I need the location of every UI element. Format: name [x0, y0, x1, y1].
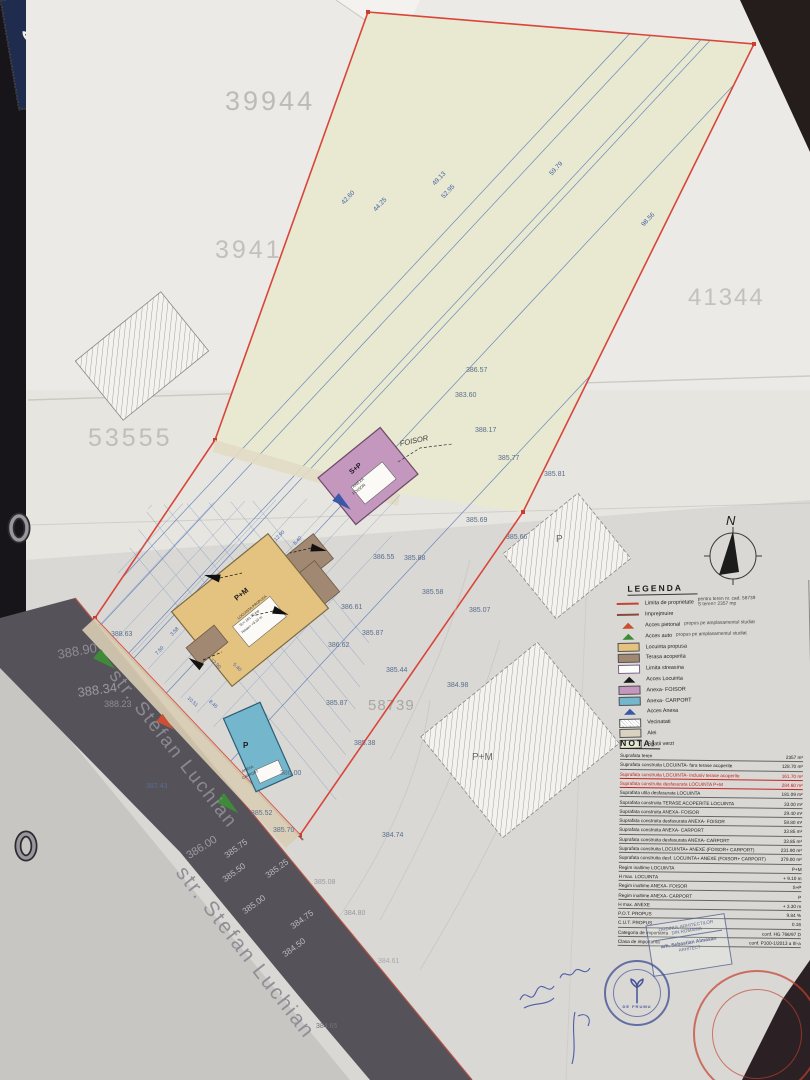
pedestrian-access-symbol	[616, 623, 640, 630]
svg-text:384.61: 384.61	[378, 958, 400, 965]
neighbor-label: P	[556, 534, 563, 545]
svg-text:385.81: 385.81	[544, 471, 566, 478]
parcel-id: 41344	[688, 284, 765, 311]
svg-text:386.00: 386.00	[280, 770, 302, 777]
svg-text:385.70: 385.70	[273, 827, 295, 834]
svg-text:386.62: 386.62	[328, 642, 350, 649]
neighbors-symbol	[618, 718, 642, 728]
svg-text:384.74: 384.74	[382, 832, 404, 839]
carport-symbol	[618, 697, 642, 707]
svg-text:388.63: 388.63	[111, 631, 133, 638]
fence-symbol	[616, 613, 640, 616]
north-label: N	[726, 513, 736, 528]
parcel-id: 39944	[225, 86, 315, 116]
svg-text:385.87: 385.87	[326, 700, 348, 707]
svg-text:386.61: 386.61	[341, 604, 363, 611]
svg-text:384.98: 384.98	[447, 682, 469, 689]
svg-text:386.57: 386.57	[466, 367, 488, 374]
svg-text:385.52: 385.52	[251, 810, 273, 817]
svg-text:385.08: 385.08	[314, 879, 336, 886]
parcel-id: 58739	[368, 697, 415, 714]
svg-text:385.44: 385.44	[386, 667, 408, 674]
auto-access-symbol	[616, 633, 640, 640]
svg-text:385.87: 385.87	[362, 630, 384, 637]
company-round-stamp: DE FRUMU	[604, 960, 670, 1026]
terrace-symbol	[617, 653, 641, 663]
neighbor-label: P+M	[472, 752, 493, 763]
svg-text:385.69: 385.69	[466, 517, 488, 524]
carport-regime-label: P	[243, 741, 249, 750]
svg-text:385.66: 385.66	[506, 534, 528, 541]
svg-text:383.60: 383.60	[455, 392, 477, 399]
svg-text:385.88: 385.88	[404, 555, 426, 562]
svg-text:386.55: 386.55	[373, 554, 395, 561]
svg-text:385.58: 385.58	[422, 589, 444, 596]
red-stamp-inner-ring	[712, 989, 802, 1079]
nota-title: NOTA!	[620, 738, 660, 749]
svg-text:385.07: 385.07	[469, 607, 491, 614]
svg-text:385.38: 385.38	[354, 740, 376, 747]
plant-logo-icon	[627, 978, 647, 1004]
parcel-id: 53555	[88, 424, 173, 452]
photographed-site-plan: 39944 39416 53555 41344 58739 41344	[0, 0, 810, 1080]
legend-panel: LEGENDA Limita de proprietate pentru ter…	[615, 580, 810, 750]
svg-text:388.17: 388.17	[475, 427, 497, 434]
svg-text:384.80: 384.80	[344, 910, 366, 917]
eave-limit-symbol	[617, 664, 641, 674]
svg-text:387.43: 387.43	[146, 783, 168, 790]
binder-ring	[11, 516, 27, 540]
house-access-symbol	[617, 676, 641, 683]
svg-text:385.77: 385.77	[498, 455, 520, 462]
anexa-access-symbol	[618, 709, 642, 716]
property-limit-symbol	[616, 603, 640, 606]
foisor-symbol	[617, 686, 641, 696]
legend-title: LEGENDA	[627, 582, 697, 595]
house-symbol	[617, 643, 641, 653]
